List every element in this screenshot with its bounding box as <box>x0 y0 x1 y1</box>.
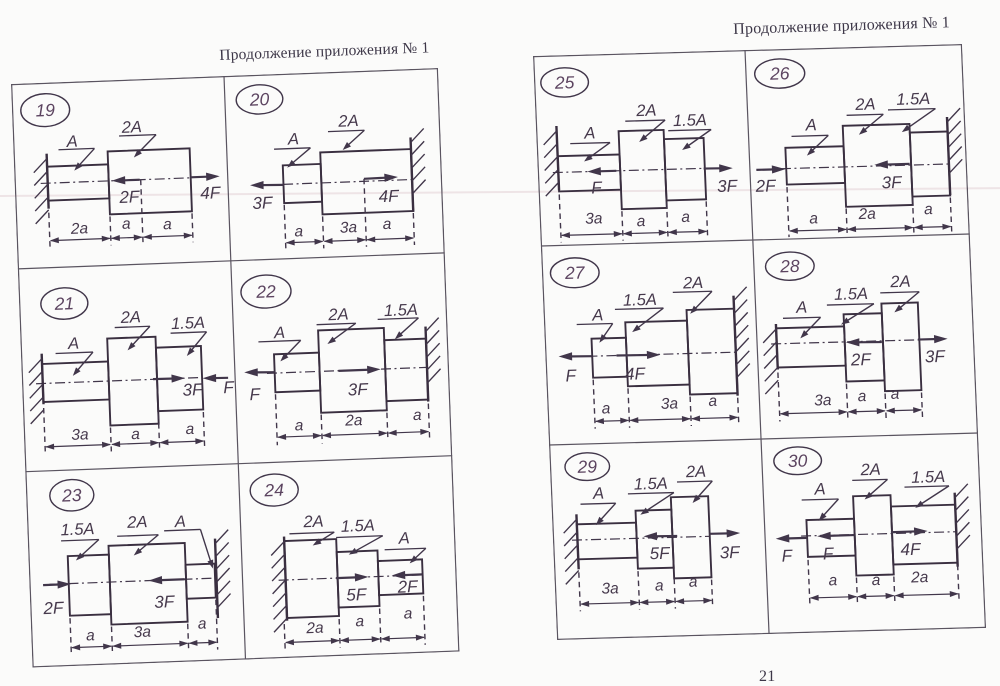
svg-text:4F: 4F <box>900 540 922 560</box>
svg-text:3a: 3a <box>601 580 619 597</box>
svg-text:2A: 2A <box>635 102 657 121</box>
svg-text:A: A <box>795 299 808 317</box>
svg-text:3F: 3F <box>154 592 176 612</box>
svg-text:3a: 3a <box>71 426 89 444</box>
svg-text:2A: 2A <box>685 463 707 482</box>
svg-text:3a: 3a <box>340 219 358 237</box>
svg-text:A: A <box>591 306 604 324</box>
svg-text:22: 22 <box>255 281 276 302</box>
svg-text:3a: 3a <box>133 624 151 642</box>
svg-text:2a: 2a <box>305 620 324 638</box>
svg-text:2A: 2A <box>126 513 148 532</box>
svg-text:4F: 4F <box>378 186 400 206</box>
svg-text:3a: 3a <box>814 392 832 409</box>
svg-text:a: a <box>86 627 96 644</box>
svg-text:2A: 2A <box>854 95 876 114</box>
svg-text:a: a <box>294 417 304 434</box>
svg-text:2A: 2A <box>302 513 324 532</box>
svg-text:2A: 2A <box>120 118 142 137</box>
svg-text:a: a <box>681 209 691 226</box>
svg-text:29: 29 <box>576 456 598 477</box>
svg-text:a: a <box>131 426 141 443</box>
svg-text:a: a <box>655 577 665 594</box>
svg-text:3F: 3F <box>925 347 947 367</box>
svg-text:30: 30 <box>788 450 809 471</box>
svg-text:27: 27 <box>564 262 587 283</box>
svg-text:2F: 2F <box>396 577 419 597</box>
svg-text:3F: 3F <box>719 543 741 563</box>
svg-text:a: a <box>163 216 173 233</box>
svg-text:a: a <box>198 615 208 632</box>
svg-text:1.5A: 1.5A <box>633 475 668 494</box>
svg-text:A: A <box>174 513 187 531</box>
svg-text:4F: 4F <box>625 364 647 384</box>
svg-text:2A: 2A <box>337 112 359 131</box>
svg-text:19: 19 <box>35 100 55 121</box>
svg-text:2F: 2F <box>754 176 777 196</box>
svg-text:2F: 2F <box>42 598 65 618</box>
svg-text:a: a <box>185 421 195 438</box>
svg-text:F: F <box>823 544 836 563</box>
svg-text:3F: 3F <box>717 176 739 196</box>
svg-text:a: a <box>403 605 413 622</box>
svg-text:a: a <box>924 201 934 218</box>
svg-text:a: a <box>708 393 718 410</box>
svg-text:2a: 2a <box>344 412 363 430</box>
svg-text:a: a <box>382 216 392 233</box>
svg-text:a: a <box>871 572 881 589</box>
svg-text:20: 20 <box>248 89 269 110</box>
svg-text:1.5A: 1.5A <box>384 301 419 320</box>
svg-text:a: a <box>857 388 867 405</box>
svg-text:F: F <box>781 546 794 565</box>
svg-text:3F: 3F <box>252 193 274 213</box>
svg-text:1.5A: 1.5A <box>896 90 931 109</box>
svg-text:28: 28 <box>779 256 801 277</box>
svg-text:3a: 3a <box>585 210 603 227</box>
svg-text:24: 24 <box>263 480 284 501</box>
svg-text:2A: 2A <box>859 461 881 480</box>
svg-text:A: A <box>583 124 596 142</box>
svg-text:A: A <box>592 485 605 503</box>
svg-text:A: A <box>397 529 410 547</box>
svg-text:A: A <box>813 480 826 498</box>
svg-text:1.5A: 1.5A <box>60 520 95 539</box>
svg-text:a: a <box>688 574 698 591</box>
svg-text:2a: 2a <box>910 569 929 587</box>
svg-text:2a: 2a <box>69 220 88 238</box>
svg-text:A: A <box>65 133 78 151</box>
svg-text:a: a <box>636 213 646 230</box>
svg-text:2a: 2a <box>857 206 876 224</box>
svg-text:A: A <box>287 130 300 148</box>
svg-text:1.5A: 1.5A <box>911 468 946 487</box>
svg-text:a: a <box>828 572 838 589</box>
svg-text:2A: 2A <box>682 274 704 293</box>
svg-text:4F: 4F <box>200 183 222 203</box>
svg-text:F: F <box>591 178 604 197</box>
svg-text:23: 23 <box>61 485 82 506</box>
svg-text:5F: 5F <box>346 585 368 605</box>
svg-text:2A: 2A <box>889 273 911 292</box>
svg-text:A: A <box>804 116 817 134</box>
svg-text:A: A <box>67 335 80 353</box>
svg-text:2F: 2F <box>850 350 873 370</box>
svg-text:A: A <box>273 324 286 342</box>
svg-text:a: a <box>355 613 365 630</box>
svg-text:21: 21 <box>53 293 74 314</box>
svg-text:F: F <box>223 378 236 397</box>
svg-text:2F: 2F <box>118 187 141 207</box>
svg-text:3F: 3F <box>182 380 204 400</box>
svg-text:3F: 3F <box>347 380 369 400</box>
svg-text:a: a <box>809 210 819 227</box>
svg-text:3F: 3F <box>881 173 903 193</box>
svg-text:a: a <box>890 386 900 403</box>
svg-text:F: F <box>249 385 262 404</box>
svg-text:a: a <box>413 407 423 424</box>
svg-text:2A: 2A <box>119 308 141 327</box>
svg-text:a: a <box>122 216 132 233</box>
svg-text:5F: 5F <box>649 544 671 564</box>
svg-text:3a: 3a <box>661 395 679 412</box>
svg-text:1.5A: 1.5A <box>171 314 206 333</box>
svg-text:1.5A: 1.5A <box>834 285 869 304</box>
svg-text:25: 25 <box>553 72 575 93</box>
svg-text:26: 26 <box>769 63 791 84</box>
svg-text:F: F <box>565 366 578 385</box>
svg-text:a: a <box>601 400 611 417</box>
svg-text:2A: 2A <box>327 305 349 324</box>
svg-text:1.5A: 1.5A <box>340 517 375 536</box>
svg-text:a: a <box>294 223 304 240</box>
svg-text:1.5A: 1.5A <box>623 291 658 310</box>
svg-text:1.5A: 1.5A <box>673 111 708 130</box>
